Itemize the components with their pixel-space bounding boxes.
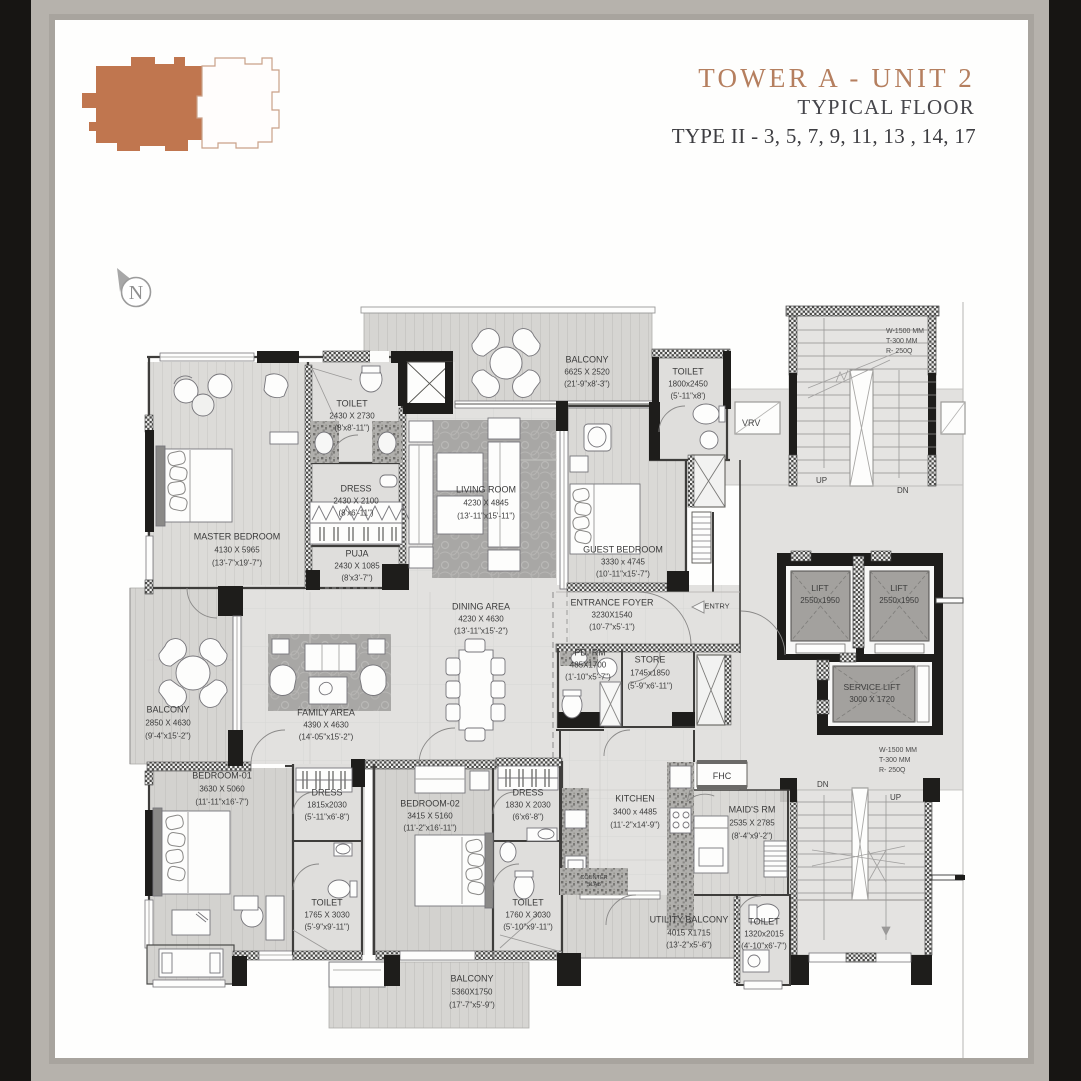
svg-text:N: N [129, 282, 143, 304]
svg-text:2550x1950: 2550x1950 [879, 596, 919, 605]
svg-text:5360X1750: 5360X1750 [452, 988, 493, 997]
svg-text:PUJA: PUJA [345, 549, 368, 559]
svg-text:(8'x6'-11"): (8'x6'-11") [338, 509, 373, 518]
svg-text:1760 X 3030: 1760 X 3030 [505, 911, 551, 920]
svg-text:BALCONY: BALCONY [565, 355, 608, 365]
svg-text:DN: DN [897, 486, 909, 495]
svg-text:(13'-11"x15'-2"): (13'-11"x15'-2") [454, 627, 508, 636]
svg-text:SERVICE LIFT: SERVICE LIFT [844, 682, 901, 692]
svg-text:(11'-2"x14'-9"): (11'-2"x14'-9") [610, 821, 660, 830]
svg-text:DN: DN [817, 780, 829, 789]
svg-text:KITCHEN: KITCHEN [615, 794, 655, 804]
svg-text:(1'-10"x5'-7"): (1'-10"x5'-7") [565, 673, 611, 682]
svg-text:TOILET: TOILET [748, 917, 780, 927]
svg-text:1320x2015: 1320x2015 [744, 930, 784, 939]
svg-text:(9'-4"x15'-2"): (9'-4"x15'-2") [145, 732, 191, 741]
svg-text:(10'-11"x15'-7"): (10'-11"x15'-7") [596, 570, 650, 579]
svg-text:R- 250Q: R- 250Q [886, 348, 913, 355]
svg-text:3400 x 4485: 3400 x 4485 [613, 808, 658, 817]
svg-text:COUNTER: COUNTER [580, 875, 607, 881]
svg-text:BALCONY: BALCONY [450, 974, 493, 984]
svg-text:4230 X 4845: 4230 X 4845 [463, 499, 509, 508]
svg-text:BALCONY: BALCONY [146, 705, 189, 715]
svg-text:TOILET: TOILET [672, 367, 704, 377]
svg-text:485X1700: 485X1700 [570, 661, 607, 670]
svg-text:3415 X 5160: 3415 X 5160 [407, 812, 453, 821]
svg-text:BEDROOM-01: BEDROOM-01 [192, 771, 252, 781]
svg-text:ENTRY: ENTRY [704, 602, 729, 611]
svg-text:MAID'S RM: MAID'S RM [729, 805, 776, 815]
svg-text:2535 X 2785: 2535 X 2785 [729, 819, 775, 828]
svg-text:(8'x8'-11"): (8'x8'-11") [334, 424, 369, 433]
svg-text:UTILITY BALCONY: UTILITY BALCONY [650, 915, 729, 925]
svg-text:1745x1850: 1745x1850 [630, 669, 670, 678]
svg-text:2430 X 2100: 2430 X 2100 [333, 497, 379, 506]
svg-text:FHC: FHC [713, 771, 732, 781]
svg-text:TYPICAL FLOOR: TYPICAL FLOOR [797, 95, 975, 119]
svg-text:2550x1950: 2550x1950 [800, 596, 840, 605]
svg-text:MASTER BEDROOM: MASTER BEDROOM [194, 532, 281, 542]
svg-text:4130 X 5965: 4130 X 5965 [214, 546, 260, 555]
svg-text:TYPE II - 3, 5, 7, 9, 11, 13 ,: TYPE II - 3, 5, 7, 9, 11, 13 , 14, 17 [672, 124, 976, 148]
svg-text:FAMILY AREA: FAMILY AREA [297, 708, 355, 718]
svg-text:1830 X 2030: 1830 X 2030 [505, 801, 551, 810]
svg-text:1815x2030: 1815x2030 [307, 801, 347, 810]
svg-text:4390 X 4630: 4390 X 4630 [303, 721, 349, 730]
svg-text:DRESS: DRESS [311, 788, 342, 798]
svg-text:(8'x3'-7"): (8'x3'-7") [341, 574, 373, 583]
svg-text:(11'-2"x16'-11"): (11'-2"x16'-11") [403, 824, 457, 833]
svg-text:(13'-11"x15'-11"): (13'-11"x15'-11") [457, 512, 515, 521]
svg-text:UP: UP [816, 476, 827, 485]
svg-text:TOILET: TOILET [512, 898, 544, 908]
svg-text:1765 X 3030: 1765 X 3030 [304, 911, 350, 920]
svg-text:GUEST BEDROOM: GUEST BEDROOM [583, 545, 663, 555]
svg-text:LIFT: LIFT [890, 583, 907, 593]
svg-text:3630 X 5060: 3630 X 5060 [199, 785, 245, 794]
svg-text:T-300 MM: T-300 MM [886, 338, 918, 345]
svg-text:(5'-10"x9'-11"): (5'-10"x9'-11") [503, 923, 553, 932]
svg-text:(10'-7"x5'-1"): (10'-7"x5'-1") [589, 623, 635, 632]
svg-text:3230X1540: 3230X1540 [592, 611, 633, 620]
svg-text:(5'-9"x9'-11"): (5'-9"x9'-11") [304, 923, 349, 932]
svg-text:PD. RM: PD. RM [574, 648, 606, 658]
svg-text:2850 X 4630: 2850 X 4630 [145, 719, 191, 728]
svg-text:4230 X 4630: 4230 X 4630 [458, 615, 504, 624]
svg-text:(5'-11"x8'): (5'-11"x8') [670, 392, 705, 401]
svg-text:2430 X 1085: 2430 X 1085 [334, 562, 380, 571]
svg-text:W-1500 MM: W-1500 MM [886, 328, 924, 335]
svg-text:4015 X1715: 4015 X1715 [667, 929, 711, 938]
svg-text:(21'-9"x8'-3"): (21'-9"x8'-3") [564, 380, 610, 389]
svg-text:(13'-2"x5'-6"): (13'-2"x5'-6") [666, 941, 712, 950]
svg-text:R- 250Q: R- 250Q [879, 767, 906, 774]
svg-text:(11'-11"x16'-7"): (11'-11"x16'-7") [195, 798, 249, 807]
svg-text:LIVING ROOM: LIVING ROOM [456, 485, 516, 495]
svg-text:TOILET: TOILET [336, 399, 368, 409]
svg-text:DRESS: DRESS [340, 484, 371, 494]
svg-text:LIFT: LIFT [811, 583, 828, 593]
svg-text:6625 X 2520: 6625 X 2520 [564, 368, 610, 377]
svg-text:DRESS: DRESS [512, 788, 543, 798]
svg-text:BEDROOM-02: BEDROOM-02 [400, 799, 460, 809]
svg-text:VRV: VRV [742, 418, 760, 428]
svg-text:(8'-4"x9'-2"): (8'-4"x9'-2") [731, 832, 773, 841]
svg-text:STORE: STORE [635, 655, 666, 665]
svg-text:(4'-10"x6'-7"): (4'-10"x6'-7") [741, 942, 787, 951]
svg-text:3330 x 4745: 3330 x 4745 [601, 558, 646, 567]
svg-text:W-1500 MM: W-1500 MM [879, 747, 917, 754]
svg-text:(17'-7"x5'-9"): (17'-7"x5'-9") [449, 1001, 495, 1010]
svg-text:(14'-05"x15'-2"): (14'-05"x15'-2") [299, 733, 354, 742]
svg-text:T-300 MM: T-300 MM [879, 757, 911, 764]
svg-text:TOWER A - UNIT 2: TOWER A - UNIT 2 [698, 63, 975, 93]
svg-text:(5'-9"x6'-11"): (5'-9"x6'-11") [627, 682, 672, 691]
svg-text:DINING AREA: DINING AREA [452, 602, 510, 612]
svg-text:(5'-11"x6'-8"): (5'-11"x6'-8") [304, 813, 349, 822]
svg-text:(13'-7"x19'-7"): (13'-7"x19'-7") [212, 559, 262, 568]
svg-text:ENTRANCE FOYER: ENTRANCE FOYER [570, 598, 654, 608]
svg-text:SLAB: SLAB [587, 882, 601, 888]
svg-text:UP: UP [890, 793, 901, 802]
svg-text:2430 X 2730: 2430 X 2730 [329, 412, 375, 421]
svg-text:3000 X 1720: 3000 X 1720 [849, 695, 895, 704]
svg-text:TOILET: TOILET [311, 898, 343, 908]
svg-text:1800x2450: 1800x2450 [668, 380, 708, 389]
svg-text:(6'x6'-8"): (6'x6'-8") [512, 813, 544, 822]
